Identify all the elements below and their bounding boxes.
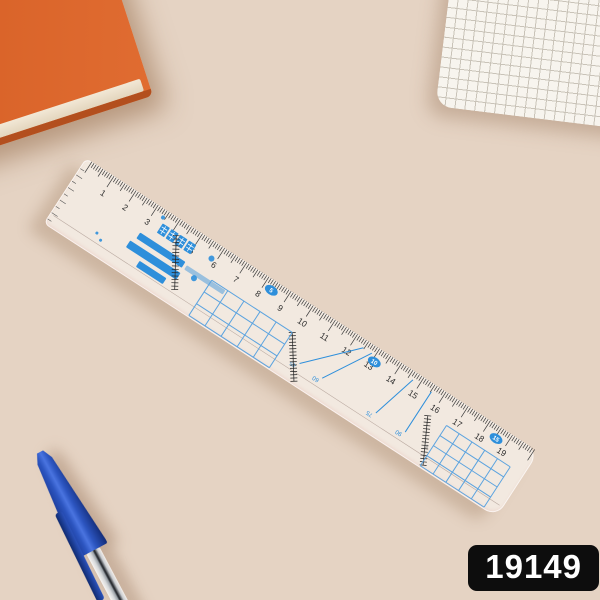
svg-text:8: 8 [253, 288, 263, 299]
bottom-bevel-line [53, 216, 499, 506]
svg-text:11: 11 [318, 330, 331, 343]
svg-text:17: 17 [451, 416, 465, 430]
cm-scale-ticks [85, 162, 535, 460]
product-code-badge: 19149 [468, 545, 599, 591]
orange-notebook [0, 0, 153, 198]
blue-grids [189, 275, 510, 507]
photo-scene: 1234567891011121314151617181951015456075… [0, 0, 600, 600]
ruler-markings: 1234567891011121314151617181951015456075… [44, 158, 539, 518]
left-edge-ticks [48, 169, 87, 223]
svg-text:7: 7 [231, 274, 241, 285]
svg-text:14: 14 [384, 373, 398, 387]
svg-text:10: 10 [296, 316, 310, 330]
grid-paper-pad [435, 0, 600, 143]
svg-text:60: 60 [311, 374, 320, 383]
svg-text:9: 9 [424, 444, 430, 451]
svg-text:15: 15 [406, 387, 420, 401]
svg-text:9: 9 [276, 303, 286, 314]
svg-text:18: 18 [473, 431, 487, 445]
svg-text:3: 3 [143, 216, 153, 227]
blue-ballpoint-pen [24, 444, 178, 600]
svg-text:19: 19 [495, 445, 509, 459]
pen-cap [25, 444, 108, 559]
transparent-ruler: 1234567891011121314151617181951015456075… [44, 158, 539, 518]
svg-text:16: 16 [429, 402, 443, 416]
svg-text:12: 12 [340, 344, 354, 358]
svg-text:75: 75 [365, 409, 374, 418]
svg-text:90: 90 [394, 428, 403, 437]
svg-text:1: 1 [98, 187, 108, 198]
svg-text:2: 2 [121, 202, 131, 213]
grid-side-label: 9 [424, 444, 430, 451]
